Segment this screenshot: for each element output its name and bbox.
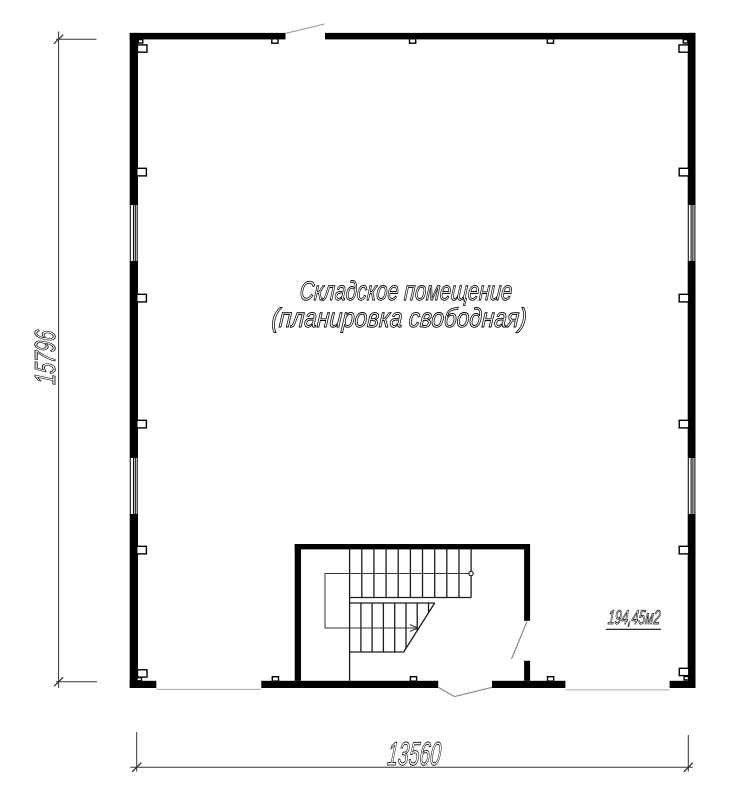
- svg-text:194,45м2: 194,45м2: [607, 606, 661, 629]
- svg-text:15796: 15796: [30, 329, 62, 386]
- svg-text:Складское помещение: Складское помещение: [299, 276, 514, 307]
- svg-text:13560: 13560: [386, 736, 442, 773]
- svg-text:(планировка свободная): (планировка свободная): [271, 303, 528, 333]
